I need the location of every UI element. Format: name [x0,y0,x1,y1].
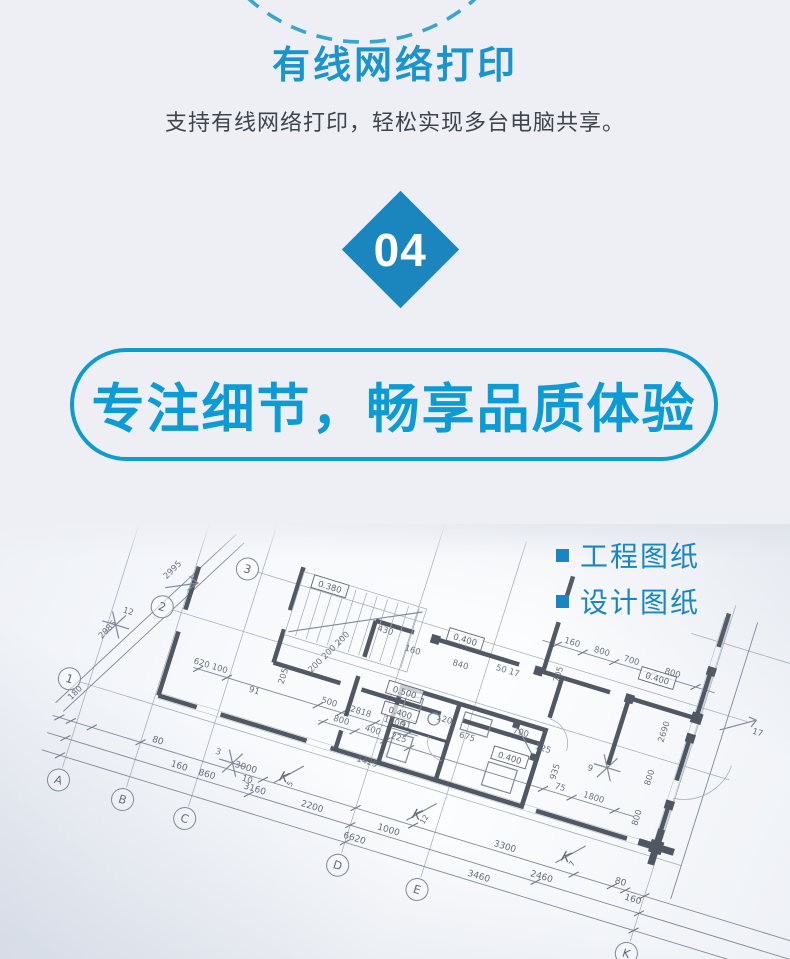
step-badge-number: 04 [374,222,427,276]
legend-label: 工程图纸 [580,535,700,575]
dim-label: 120 [435,713,453,727]
dim-label: 1000 [376,822,401,838]
section-subtitle: 支持有线网络打印，轻松实现多台电脑共享。 [0,105,790,137]
dim-label: 500 [320,695,338,709]
dim-label: 2818 [349,704,373,720]
dim-label: 800 [592,645,610,659]
dim-label: 675 [458,730,476,744]
dim-label: 2200 [299,799,324,815]
dim-label: 6620 [342,831,367,847]
dim-label: 225 [389,731,407,745]
grid-bubbles-letters: A B C D E K [45,766,640,959]
dim-label: 700 [622,654,640,668]
dim-label: 160 [403,644,421,658]
dim-label: 1425 [355,754,379,770]
legend-item-engineering: 工程图纸 [556,532,700,578]
dim-label: 1800 [582,790,606,806]
dim-label: 91 [247,685,260,698]
dim-label: 800 [630,809,644,827]
dim-label: 205 [277,667,291,685]
star-label: 12 [121,606,134,619]
dim-label: 2995 [162,559,184,581]
dim-label: 935 [548,763,562,781]
dim-label: 3460 [466,869,491,885]
dim-label: 860 [197,768,217,783]
dim-label: 800 [643,769,657,787]
dim-label: 160 [169,759,189,774]
photo-legend: 工程图纸 设计图纸 [556,532,700,624]
square-bullet-icon [556,595,569,608]
dim-label: 840 [451,658,469,672]
step-badge: 04 [342,191,459,308]
blueprint-photo: A B C D E K 1 2 3 80 [0,524,790,959]
legend-label: 设计图纸 [580,581,700,621]
slogan-banner: 专注细节，畅享品质体验 [70,348,718,461]
square-bullet-icon [556,549,569,562]
section-title: 有线网络打印 [0,34,790,89]
arrow-label: 17 [751,727,764,740]
star-label: 3 [214,747,222,758]
dim-label: 400 [363,723,381,737]
star-label: 9 [586,763,594,774]
dim-label: 3300 [492,839,517,855]
k-mark-number: 7 [567,859,577,868]
dim-label: 620 100 [192,657,229,677]
dim-label: 2690 [657,720,673,744]
dim-label: 160 [563,636,581,650]
legend-item-design: 设计图纸 [556,578,700,624]
slogan-text: 专注细节，畅享品质体验 [92,367,697,443]
page: 有线网络打印 支持有线网络打印，轻松实现多台电脑共享。 04 专注细节，畅享品质… [0,0,790,959]
dim-label: 705 [552,665,566,683]
